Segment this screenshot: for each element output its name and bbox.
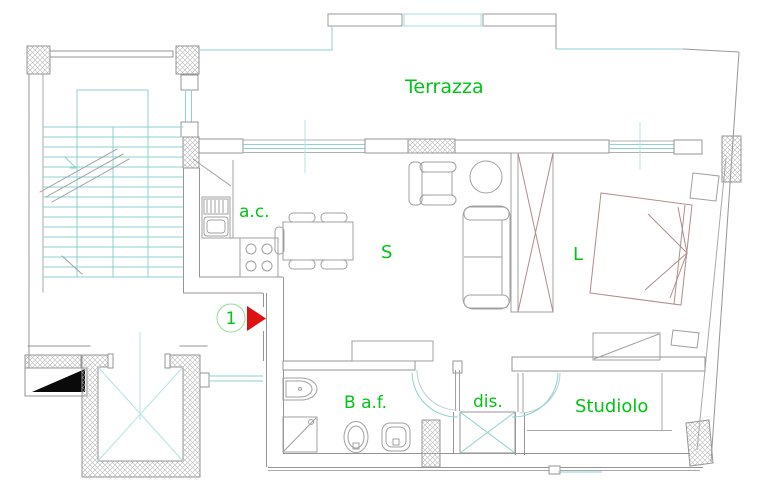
pillar — [686, 420, 713, 466]
chair — [321, 260, 347, 269]
room-label-hallway: dis. — [473, 392, 503, 412]
wall-segment — [283, 361, 415, 370]
chair — [289, 260, 315, 269]
pillar — [422, 420, 440, 467]
pillar — [27, 46, 50, 74]
parapet-segment — [328, 14, 402, 26]
hallway-door-swing — [412, 373, 458, 417]
wall-segment — [181, 122, 198, 137]
pillar — [183, 137, 199, 168]
wall-segment — [365, 139, 408, 153]
parapet-segment — [483, 14, 556, 26]
apartment-walls — [183, 52, 741, 474]
entrance-marker[interactable]: 1 — [217, 304, 266, 332]
door-jamb — [108, 354, 113, 368]
room-label-bedroom: L — [573, 244, 583, 265]
wall-notch — [549, 466, 560, 474]
chair — [289, 213, 315, 222]
burner — [246, 244, 256, 254]
room-label-bathroom: B a.f. — [344, 393, 387, 413]
floor-plan-page: Terrazza — [0, 0, 764, 492]
wall-stub — [200, 373, 209, 387]
burner — [246, 261, 256, 271]
armchair-arm — [420, 162, 456, 172]
stairwell — [27, 46, 207, 396]
wall-stub — [453, 361, 462, 373]
wall-hatched — [25, 355, 81, 368]
bed — [590, 193, 692, 305]
bathroom: B a.f. — [283, 378, 410, 453]
bidet-drain — [393, 439, 399, 445]
stair-direction-arrow — [65, 157, 76, 168]
door-jamb — [165, 354, 170, 368]
hall-cabinet — [352, 341, 433, 361]
desk-diagonal — [594, 334, 659, 359]
toilet-bowl — [348, 426, 364, 448]
dining-table — [283, 222, 353, 260]
stair-break-lines — [40, 149, 129, 274]
bed-headboard — [674, 205, 685, 304]
kitchenette: a.c. — [202, 160, 353, 277]
wall-hatched — [408, 139, 455, 153]
bathroom-door-swing — [417, 370, 457, 410]
bedroom: L — [573, 173, 719, 348]
room-label-living: S — [381, 242, 392, 263]
stove — [240, 238, 278, 277]
wall-segment — [181, 75, 198, 90]
room-label-terrazza: Terrazza — [404, 76, 484, 98]
sofa-armrest — [464, 295, 509, 308]
round-table — [470, 161, 502, 193]
terrace-edge — [199, 26, 332, 50]
bidet-inner — [386, 427, 406, 447]
sink-drainer — [204, 199, 228, 214]
parapet-segment — [404, 14, 481, 26]
study-door-swing — [520, 373, 560, 413]
bed-pillow — [648, 207, 687, 253]
terrace: Terrazza — [199, 14, 739, 98]
nightstand — [690, 173, 719, 201]
wardrobe-side-panel — [511, 153, 518, 312]
wall-segment — [674, 140, 702, 154]
burner — [262, 261, 272, 271]
wall-segment — [199, 139, 243, 153]
entrance-flag-icon — [247, 306, 266, 331]
entry-door-leaf — [193, 159, 231, 186]
room-label-study: Studiolo — [575, 396, 648, 417]
armchair-seat — [422, 172, 452, 195]
wall-segment — [455, 140, 609, 153]
stair-treads — [43, 90, 183, 277]
sink-basin-inner — [207, 220, 225, 233]
living-room: S — [381, 161, 510, 309]
floor-plan-canvas: Terrazza — [0, 0, 764, 492]
wardrobe — [511, 153, 553, 312]
burner — [262, 244, 272, 254]
study: Studiolo — [575, 333, 660, 417]
terrace-edge — [683, 49, 739, 52]
sofa-armrest — [464, 207, 509, 220]
pillar — [176, 46, 199, 74]
stairwell-top-wall — [50, 51, 173, 57]
marker-number: 1 — [226, 309, 237, 329]
washbasin-drain — [299, 388, 302, 391]
shower-diagonal — [284, 418, 316, 451]
nightstand — [671, 330, 699, 348]
elevator-door-gap — [112, 354, 166, 368]
armchair-arm — [420, 195, 456, 205]
outer-wall-right — [711, 52, 739, 462]
chair — [321, 213, 347, 222]
wall-segment — [512, 357, 705, 371]
bed-pillow — [645, 253, 687, 298]
room-label-kitchenette: a.c. — [239, 202, 270, 222]
elevator — [25, 332, 263, 477]
